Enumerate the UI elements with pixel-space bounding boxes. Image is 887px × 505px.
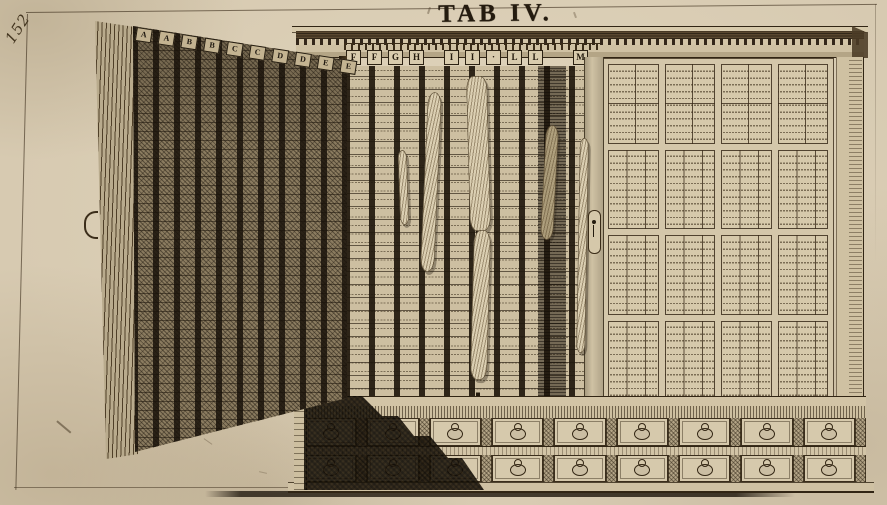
compartment-block xyxy=(608,150,659,230)
drawer-divider xyxy=(793,455,804,482)
drawer-divider xyxy=(855,418,866,446)
interior-letter-cell: L xyxy=(507,50,522,65)
compartment-block xyxy=(665,235,716,315)
drawer xyxy=(741,455,792,482)
drawer-pull-icon xyxy=(759,428,775,440)
drawer-divider xyxy=(606,455,617,482)
paper-scratch xyxy=(259,471,267,474)
compartment-block xyxy=(778,235,829,315)
compartment-block xyxy=(608,321,659,401)
interior-letter-cell: G xyxy=(388,50,403,65)
paper-scratch xyxy=(57,420,72,433)
compartment-block xyxy=(778,321,829,401)
door-letter-cell: D xyxy=(294,52,312,68)
door-letter-cell: B xyxy=(180,34,198,50)
drawer xyxy=(679,455,730,482)
interior-letter-cell: H xyxy=(409,50,424,65)
engraved-plate: TAB IV. 152 FFGHII·LLM xyxy=(0,0,887,505)
drawer-pull-icon xyxy=(572,428,588,440)
drawer xyxy=(804,455,855,482)
door-letter-cell: A xyxy=(158,31,176,47)
drawer-divider xyxy=(668,418,679,446)
plate-border-left xyxy=(15,14,28,490)
drawer-divider xyxy=(793,418,804,446)
door-letter-cell: C xyxy=(226,41,244,57)
cabinet-door xyxy=(132,24,347,456)
door-letter-cell: A xyxy=(135,27,153,43)
drawer xyxy=(617,455,668,482)
interior-letter-cell: · xyxy=(486,50,501,65)
drawer-pull-icon xyxy=(759,464,775,476)
drawer-pull-icon xyxy=(821,464,837,476)
drawer xyxy=(430,418,481,446)
drawer-divider xyxy=(481,455,492,482)
door-letter-cell: C xyxy=(249,45,267,61)
drawer xyxy=(492,455,543,482)
drawer xyxy=(554,455,605,482)
cornice-crown-molding xyxy=(296,31,864,39)
paper-scratch xyxy=(204,438,213,445)
interior-letter-cell: F xyxy=(367,50,382,65)
page-number-annotation: 152 xyxy=(2,3,39,46)
drawer-divider xyxy=(668,455,679,482)
door-letter-cell: B xyxy=(203,38,221,54)
plate-border-right xyxy=(875,4,876,264)
door-letter-cell: E xyxy=(317,55,335,71)
compartment-block xyxy=(778,64,829,144)
drawer-pull-icon xyxy=(447,428,463,440)
compartment-block xyxy=(721,64,772,144)
drawer-pull-icon xyxy=(697,464,713,476)
door-outer-edge xyxy=(92,18,138,460)
keyhole-escutcheon-icon xyxy=(588,210,601,254)
drawer xyxy=(804,418,855,446)
drawer-pull-icon xyxy=(697,428,713,440)
door-letter-cell: E xyxy=(339,59,357,75)
drawer-pull-icon xyxy=(572,464,588,476)
drawer-divider xyxy=(606,418,617,446)
hanging-specimen xyxy=(466,76,491,231)
drawer-pull-icon xyxy=(510,428,526,440)
drawer-divider xyxy=(481,418,492,446)
drawer-divider xyxy=(855,455,866,482)
drawer xyxy=(492,418,543,446)
drawer-pull-icon xyxy=(634,464,650,476)
interior-letter-cell: L xyxy=(528,50,543,65)
drawer-divider xyxy=(543,455,554,482)
drawer-divider xyxy=(730,455,741,482)
drawer-divider xyxy=(543,418,554,446)
drawer xyxy=(617,418,668,446)
compartment-block xyxy=(665,64,716,144)
compartment-block xyxy=(778,150,829,230)
drawer-pull-icon xyxy=(821,428,837,440)
compartment-panel xyxy=(602,58,834,406)
drawer-pull-icon xyxy=(510,464,526,476)
drawer xyxy=(679,418,730,446)
compartment-block xyxy=(721,150,772,230)
hinge-icon xyxy=(84,211,98,239)
interior-tick-band xyxy=(344,43,600,50)
compartment-block xyxy=(721,235,772,315)
interior-letter-row: FFGHII·LLM xyxy=(346,50,598,64)
drawer xyxy=(554,418,605,446)
compartment-block xyxy=(665,321,716,401)
compartment-block xyxy=(665,150,716,230)
compartment-block xyxy=(608,64,659,144)
drawer-divider xyxy=(730,418,741,446)
interior-letter-cell: I xyxy=(465,50,480,65)
drawer-pull-icon xyxy=(634,428,650,440)
compartment-block xyxy=(721,321,772,401)
interior-letter-cell: I xyxy=(444,50,459,65)
door-letter-cell: D xyxy=(271,48,289,64)
drawer xyxy=(741,418,792,446)
compartment-block xyxy=(608,235,659,315)
